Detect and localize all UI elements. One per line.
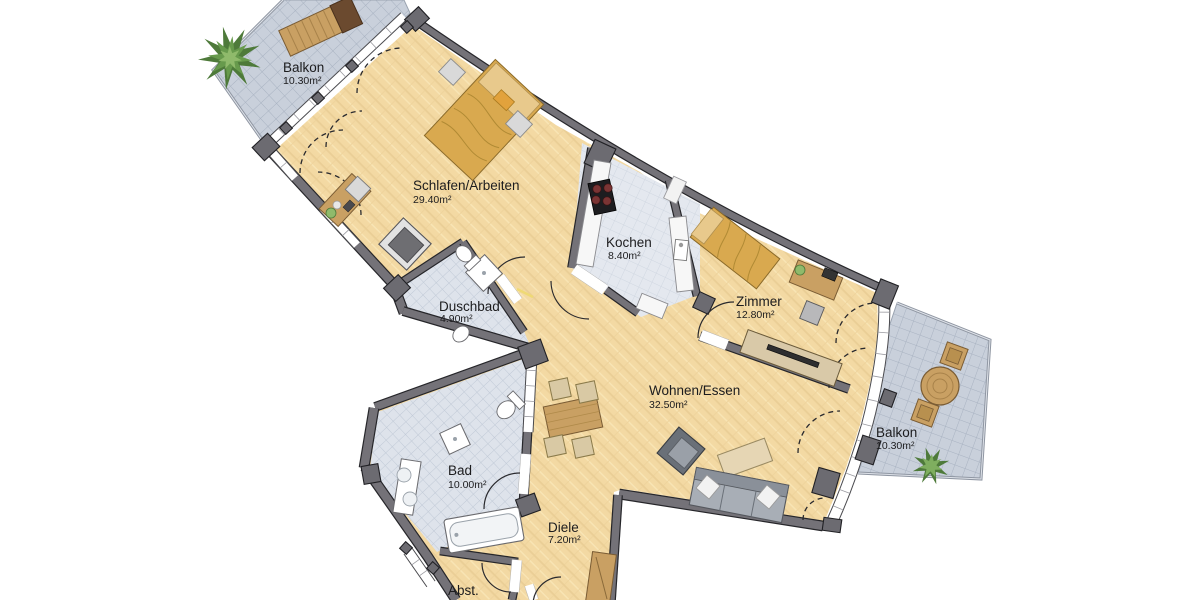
svg-text:7.20m²: 7.20m² [548, 534, 581, 546]
svg-text:12.80m²: 12.80m² [736, 309, 775, 321]
svg-text:Zimmer: Zimmer [736, 294, 782, 309]
svg-text:Abst.: Abst. [448, 583, 479, 598]
svg-text:Bad: Bad [448, 463, 472, 478]
svg-text:10.30m²: 10.30m² [876, 440, 915, 452]
svg-text:4.90m²: 4.90m² [440, 313, 473, 325]
svg-text:8.40m²: 8.40m² [608, 250, 641, 262]
svg-text:29.40m²: 29.40m² [413, 194, 452, 206]
svg-text:Schlafen/Arbeiten: Schlafen/Arbeiten [413, 178, 520, 193]
svg-text:Duschbad: Duschbad [439, 299, 500, 314]
svg-text:10.00m²: 10.00m² [448, 479, 487, 491]
svg-text:Wohnen/Essen: Wohnen/Essen [649, 383, 740, 398]
svg-text:10.30m²: 10.30m² [283, 75, 322, 87]
svg-text:Kochen: Kochen [606, 235, 652, 250]
svg-text:Balkon: Balkon [876, 425, 917, 440]
svg-text:Balkon: Balkon [283, 60, 324, 75]
svg-text:32.50m²: 32.50m² [649, 399, 688, 411]
svg-text:Diele: Diele [548, 520, 579, 535]
